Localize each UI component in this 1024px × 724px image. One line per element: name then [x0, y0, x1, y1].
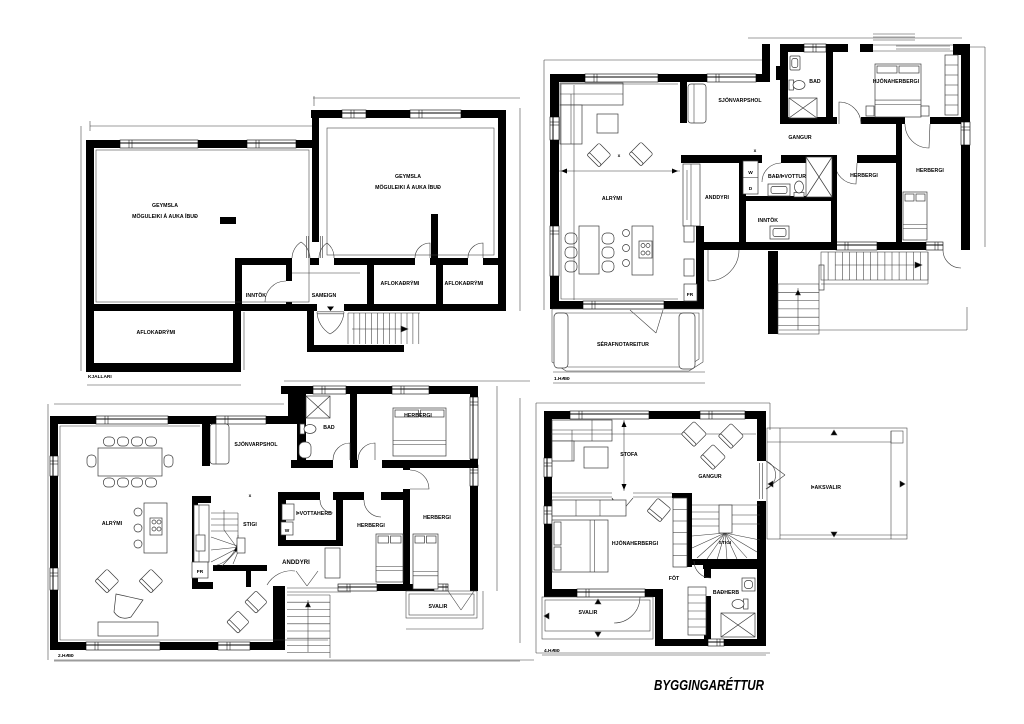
svg-text:STIGI: STIGI [243, 522, 257, 528]
svg-text:1.HÆÐ: 1.HÆÐ [554, 376, 570, 382]
svg-text:SVALIR: SVALIR [579, 610, 598, 616]
svg-text:INNTÖK: INNTÖK [758, 217, 778, 224]
svg-text:HERBERGI: HERBERGI [850, 173, 878, 179]
svg-text:W: W [748, 170, 753, 176]
svg-text:STOFA: STOFA [620, 452, 638, 458]
svg-text:BAÐHERB: BAÐHERB [713, 590, 739, 596]
svg-text:FR: FR [687, 292, 694, 298]
svg-text:HERBERGI: HERBERGI [423, 515, 451, 521]
svg-text:x: x [249, 494, 252, 499]
svg-text:BAD: BAD [323, 425, 335, 431]
svg-text:SVALIR: SVALIR [429, 604, 448, 610]
svg-text:ÞVOTTAHERB: ÞVOTTAHERB [296, 511, 332, 517]
svg-text:HERBERGI: HERBERGI [357, 523, 385, 529]
svg-text:HJÓNAHERBERGI: HJÓNAHERBERGI [873, 77, 920, 85]
svg-text:HERBERGI: HERBERGI [916, 168, 944, 174]
svg-text:MÖGULEIKI Á AUKA ÍBUÐ: MÖGULEIKI Á AUKA ÍBUÐ [375, 183, 441, 191]
svg-text:STIGI: STIGI [719, 540, 732, 546]
svg-text:GEYMSLA: GEYMSLA [152, 203, 178, 209]
svg-text:ANDDYRI: ANDDYRI [705, 195, 729, 201]
svg-text:x: x [618, 154, 621, 159]
svg-text:ANDDYRI: ANDDYRI [282, 560, 310, 566]
svg-text:GANGUR: GANGUR [698, 474, 722, 480]
svg-text:x: x [754, 149, 757, 154]
svg-text:HERBERGI: HERBERGI [404, 413, 432, 419]
svg-text:SJÓNVARPSHOL: SJÓNVARPSHOL [234, 440, 278, 448]
svg-text:ALRÝMI: ALRÝMI [602, 195, 623, 202]
svg-text:FÖT: FÖT [669, 575, 680, 582]
svg-text:W: W [285, 528, 290, 534]
svg-text:AFLOKAÐRÝMI: AFLOKAÐRÝMI [381, 280, 420, 287]
svg-text:ÞAKSVALIR: ÞAKSVALIR [811, 485, 841, 491]
svg-text:SJÓNVARPSHOL: SJÓNVARPSHOL [718, 96, 762, 104]
svg-text:FR: FR [197, 569, 204, 575]
svg-text:GANGUR: GANGUR [788, 135, 812, 141]
svg-text:MÖGULEIKI Á AUKA ÍBUÐ: MÖGULEIKI Á AUKA ÍBUÐ [132, 212, 198, 220]
svg-text:D: D [749, 186, 753, 192]
svg-text:BYGGINGARÉTTUR: BYGGINGARÉTTUR [654, 677, 764, 694]
svg-text:BAÐ/ÞVOTTUR: BAÐ/ÞVOTTUR [768, 174, 806, 180]
svg-text:HJÓNAHERBERGI: HJÓNAHERBERGI [612, 539, 659, 547]
svg-text:BAD: BAD [809, 79, 821, 85]
svg-text:GEYMSLA: GEYMSLA [395, 174, 421, 180]
svg-text:AFLOKAÐRÝMI: AFLOKAÐRÝMI [137, 329, 176, 336]
svg-text:4.HÆÐ: 4.HÆÐ [544, 648, 560, 654]
svg-text:AFLOKAÐRÝMI: AFLOKAÐRÝMI [445, 280, 484, 287]
svg-text:INNTÖK: INNTÖK [246, 292, 266, 299]
svg-text:2.HÆÐ: 2.HÆÐ [58, 653, 74, 659]
svg-text:KJALLARI: KJALLARI [88, 374, 112, 380]
svg-text:SAMEIGN: SAMEIGN [312, 293, 337, 299]
svg-text:SÉRAFNOTAREITUR: SÉRAFNOTAREITUR [597, 340, 649, 348]
svg-text:ALRÝMI: ALRÝMI [102, 520, 123, 527]
